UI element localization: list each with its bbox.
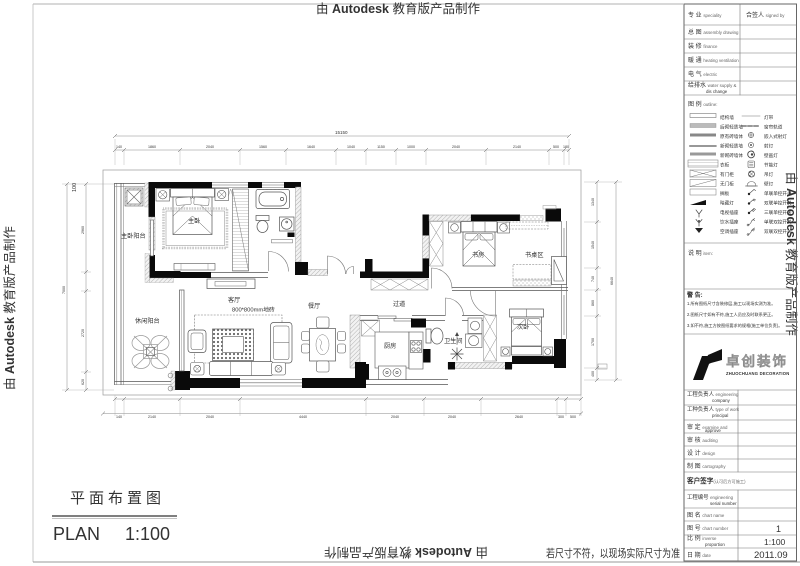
svg-text:过道: 过道 — [393, 300, 405, 308]
svg-text:620: 620 — [81, 379, 85, 385]
svg-text:2140: 2140 — [513, 145, 521, 149]
svg-text:ZHUOCHUANG DECORATION: ZHUOCHUANG DECORATION — [726, 371, 789, 376]
svg-text:次卧: 次卧 — [517, 323, 529, 331]
svg-text:餐厅: 餐厅 — [308, 302, 320, 310]
svg-text:单联单控开关: 单联单控开关 — [764, 190, 792, 197]
svg-text:饮水插座: 饮水插座 — [720, 219, 739, 226]
svg-text:暖 通 heating ventilation: 暖 通 heating ventilation — [688, 56, 739, 64]
svg-text:company: company — [712, 398, 731, 403]
svg-text:单联双控开关: 单联双控开关 — [764, 219, 792, 226]
svg-text:7000: 7000 — [62, 286, 66, 294]
svg-text:1: 1 — [776, 524, 781, 534]
svg-text:衣柜: 衣柜 — [720, 162, 730, 169]
svg-text:100: 100 — [72, 183, 78, 192]
svg-text:1:100: 1:100 — [764, 537, 786, 547]
svg-text:工程负责人 engineering: 工程负责人 engineering — [687, 390, 739, 398]
svg-text:休闲阳台: 休闲阳台 — [135, 317, 160, 325]
svg-text:1560: 1560 — [259, 145, 267, 149]
svg-text:空调插座: 空调插座 — [720, 228, 739, 235]
svg-text:日 期 date: 日 期 date — [687, 551, 711, 559]
svg-text:给排水 water supply &: 给排水 water supply & — [688, 81, 737, 89]
svg-text:500: 500 — [570, 415, 576, 419]
svg-text:PLAN 1:100: PLAN 1:100 — [53, 524, 170, 544]
svg-text:140: 140 — [116, 415, 122, 419]
svg-text:新砌轻质墙: 新砌轻质墙 — [720, 143, 743, 150]
svg-text:图 号 chart number: 图 号 chart number — [687, 525, 729, 532]
svg-text:三联单控开关: 三联单控开关 — [764, 209, 792, 216]
svg-text:2011.09: 2011.09 — [754, 550, 788, 561]
svg-text:比 例 inverse: 比 例 inverse — [687, 534, 717, 542]
svg-text:1540: 1540 — [591, 241, 595, 249]
svg-text:书桌区: 书桌区 — [525, 251, 544, 259]
svg-text:若尺寸不符，以现场实际尺寸为准: 若尺寸不符，以现场实际尺寸为准 — [546, 546, 680, 560]
svg-text:主卧: 主卧 — [188, 217, 200, 225]
svg-text:1.所有图纸尺寸含装修层,施工以现场实测为准。: 1.所有图纸尺寸含装修层,施工以现场实测为准。 — [687, 300, 775, 307]
svg-text:2040: 2040 — [452, 145, 460, 149]
svg-text:由 Autodesk 教育版产品制作: 由 Autodesk 教育版产品制作 — [2, 226, 17, 390]
svg-text:2040: 2040 — [206, 145, 214, 149]
svg-text:结构墙: 结构墙 — [720, 114, 734, 121]
svg-text:1340: 1340 — [591, 198, 595, 206]
svg-text:860: 860 — [591, 300, 595, 306]
svg-text:图 例 outline:: 图 例 outline: — [688, 100, 718, 108]
svg-text:140: 140 — [116, 145, 122, 149]
svg-text:dis change: dis change — [706, 89, 728, 94]
svg-text:2040: 2040 — [391, 415, 399, 419]
svg-text:嵌入式射灯: 嵌入式射灯 — [764, 133, 787, 140]
svg-text:厨房: 厨房 — [384, 342, 396, 350]
svg-text:审 核 auditing: 审 核 auditing — [687, 436, 718, 444]
svg-text:approve: approve — [705, 428, 721, 433]
svg-text:400: 400 — [591, 371, 595, 377]
svg-text:1860: 1860 — [148, 145, 156, 149]
svg-text:射灯: 射灯 — [764, 143, 774, 150]
svg-text:1640: 1640 — [307, 145, 315, 149]
svg-text:合签人 signed by: 合签人 signed by — [746, 11, 785, 19]
svg-text:2.图纸尺寸如有不符,施工人员应及时联系更正。: 2.图纸尺寸如有不符,施工人员应及时联系更正。 — [687, 311, 775, 318]
svg-text:专 业 speciality: 专 业 speciality — [688, 11, 722, 19]
svg-text:2640: 2640 — [515, 415, 523, 419]
svg-text:设 计 design: 设 计 design — [687, 449, 716, 457]
svg-text:由 Autodesk 教育版产品制作: 由 Autodesk 教育版产品制作 — [316, 1, 480, 16]
svg-text:无门柜: 无门柜 — [720, 181, 734, 188]
svg-text:卓创装饰: 卓创装饰 — [726, 353, 788, 369]
svg-text:工程编号 engineering: 工程编号 engineering — [687, 493, 734, 501]
svg-text:电视插座: 电视插座 — [720, 209, 739, 216]
svg-text:principal: principal — [712, 413, 728, 418]
svg-text:由 Autodesk 教育版产品制作: 由 Autodesk 教育版产品制作 — [324, 545, 488, 560]
svg-text:工种负责人 type of work: 工种负责人 type of work — [687, 405, 740, 413]
svg-text:节能灯: 节能灯 — [764, 162, 778, 169]
svg-text:后砌轻质墙: 后砌轻质墙 — [720, 124, 743, 131]
svg-text:灯带: 灯带 — [764, 114, 774, 121]
svg-text:1040: 1040 — [347, 145, 355, 149]
svg-text:2140: 2140 — [148, 415, 156, 419]
svg-text:主卧阳台: 主卧阳台 — [121, 232, 146, 240]
svg-text:客厅: 客厅 — [228, 296, 240, 304]
svg-text:2040: 2040 — [206, 415, 214, 419]
svg-text:壁画灯: 壁画灯 — [764, 152, 778, 159]
svg-text:搁板: 搁板 — [720, 190, 730, 197]
svg-text:双联单控开关: 双联单控开关 — [764, 200, 792, 207]
svg-text:卫生间: 卫生间 — [444, 337, 463, 345]
svg-text:有门柜: 有门柜 — [720, 171, 734, 178]
svg-text:800*800mm地砖: 800*800mm地砖 — [232, 306, 275, 314]
svg-text:6640: 6640 — [610, 277, 614, 285]
svg-text:平面布置图: 平面布置图 — [70, 490, 165, 507]
svg-text:壁灯: 壁灯 — [764, 181, 774, 188]
svg-text:双联双控开关: 双联双控开关 — [764, 228, 792, 235]
svg-text:2040: 2040 — [448, 415, 456, 419]
svg-text:原有砖墙体: 原有砖墙体 — [720, 133, 743, 140]
svg-text:15150: 15150 — [335, 130, 348, 135]
svg-text:1150: 1150 — [377, 145, 385, 149]
svg-text:书房: 书房 — [472, 251, 484, 259]
svg-text:serial number: serial number — [710, 501, 737, 506]
svg-text:总 图 assembly drawing: 总 图 assembly drawing — [688, 28, 739, 36]
svg-text:3.如不符,施工方按图纸要求的规格(施工单位负责)。: 3.如不符,施工方按图纸要求的规格(施工单位负责)。 — [687, 322, 782, 329]
svg-text:300: 300 — [558, 415, 564, 419]
svg-text:1000: 1000 — [407, 145, 415, 149]
svg-text:电 气 electric: 电 气 electric — [688, 70, 718, 78]
svg-text:740: 740 — [591, 276, 595, 282]
svg-text:吊灯: 吊灯 — [764, 171, 774, 178]
svg-text:proportion: proportion — [705, 542, 725, 547]
svg-text:1700: 1700 — [591, 338, 595, 346]
svg-text:说 明 item:: 说 明 item: — [688, 249, 713, 257]
svg-text:警 告:: 警 告: — [686, 291, 703, 299]
svg-text:新砌砖墙体: 新砌砖墙体 — [720, 152, 743, 159]
svg-text:图 名 chart name: 图 名 chart name — [687, 511, 725, 519]
svg-text:制 图 cartography: 制 图 cartography — [687, 462, 726, 470]
svg-text:180: 180 — [563, 145, 569, 149]
svg-text:2720: 2720 — [81, 329, 85, 337]
svg-text:装 修 finance: 装 修 finance — [688, 42, 718, 50]
svg-text:暗藏灯: 暗藏灯 — [720, 200, 734, 207]
svg-text:4440: 4440 — [299, 415, 307, 419]
svg-text:500: 500 — [553, 145, 559, 149]
svg-text:窗帘轨道: 窗帘轨道 — [764, 124, 783, 131]
svg-text:2960: 2960 — [81, 226, 85, 234]
